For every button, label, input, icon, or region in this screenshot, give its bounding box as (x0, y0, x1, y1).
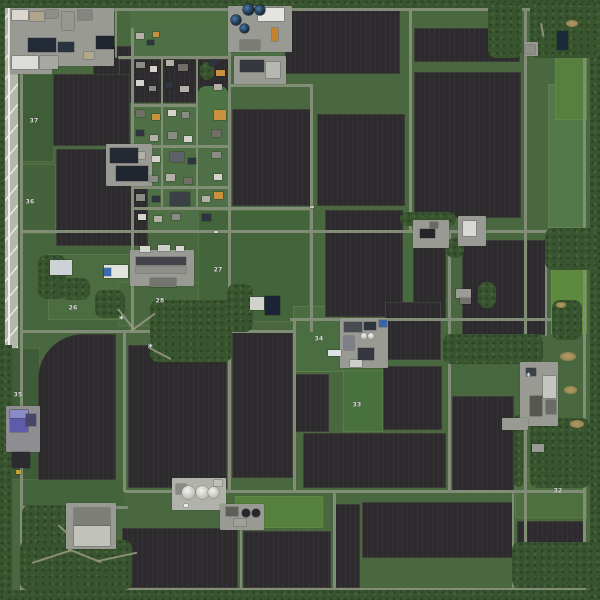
forest-patch (478, 282, 496, 308)
building (543, 376, 556, 398)
field-plot-dark[interactable] (122, 528, 238, 588)
building (176, 246, 184, 251)
road (131, 186, 230, 189)
field-plot-dark[interactable] (317, 114, 405, 206)
building (152, 196, 160, 202)
forest-patch (443, 334, 543, 364)
building (158, 245, 170, 251)
screenshot-root: ***373626282734333532 (0, 0, 600, 600)
road (583, 8, 586, 590)
vehicle-icon (310, 206, 314, 208)
white-silo-icon (208, 487, 219, 498)
building (84, 52, 94, 59)
building (165, 82, 173, 88)
building (214, 174, 222, 180)
building (178, 64, 188, 71)
field-plot-dark[interactable] (285, 7, 400, 74)
building (150, 135, 158, 141)
building (12, 10, 28, 20)
map-canvas[interactable]: ***373626282734333532 (0, 0, 600, 600)
building (136, 80, 144, 86)
building (40, 56, 58, 69)
dark-tank-icon (242, 509, 250, 517)
blue-tank-icon (255, 5, 265, 15)
building (272, 28, 278, 41)
building (216, 70, 225, 76)
field-number-label: 32 (554, 488, 563, 495)
forest-patch (530, 418, 590, 488)
building (202, 196, 210, 202)
building (104, 268, 111, 276)
building (212, 130, 221, 137)
building (214, 84, 222, 90)
building (26, 414, 36, 426)
forest-patch (512, 542, 600, 588)
building (532, 444, 544, 452)
building (463, 221, 476, 236)
building (152, 156, 160, 162)
field-plot-dark[interactable] (362, 502, 513, 558)
white-silo-icon (182, 486, 195, 499)
building (182, 112, 189, 118)
field-plot-dark[interactable] (414, 72, 521, 218)
building (168, 132, 177, 139)
building (46, 10, 58, 18)
wind-turbine-icon: * (148, 345, 153, 351)
building (50, 260, 72, 275)
dark-tank-icon (252, 509, 260, 517)
road (240, 528, 242, 588)
forest-patch (590, 0, 600, 600)
building (344, 336, 354, 350)
road (118, 56, 230, 59)
field-plot-dark[interactable] (335, 504, 360, 588)
field-number-label: 33 (353, 402, 362, 409)
field-plot-dark[interactable] (295, 374, 329, 432)
road (290, 318, 585, 321)
building (456, 289, 471, 298)
building (150, 176, 158, 182)
field-plot-dark[interactable] (325, 210, 403, 317)
field-plot-dark[interactable] (243, 531, 331, 588)
field-number-label: 36 (26, 199, 35, 206)
wind-turbine-icon: * (119, 317, 124, 323)
forest-patch (488, 2, 522, 58)
field-plot-dark[interactable] (232, 109, 311, 206)
building (30, 12, 44, 21)
field-number-label: 28 (156, 298, 165, 305)
building (350, 360, 362, 367)
building (430, 222, 438, 228)
building (240, 60, 264, 72)
field-number-label: 26 (69, 305, 78, 312)
sand-patch (570, 420, 584, 428)
building (212, 152, 221, 158)
building (170, 152, 184, 162)
building (136, 194, 145, 201)
building (140, 246, 150, 252)
blue-tank-icon (240, 24, 249, 33)
white-silo-icon (368, 333, 374, 339)
building (62, 12, 74, 30)
road (310, 84, 313, 332)
building (166, 174, 175, 181)
field-plot-dark[interactable] (303, 433, 446, 488)
building (557, 31, 568, 50)
field-plot-dark[interactable] (232, 332, 293, 478)
vehicle-icon (184, 504, 188, 507)
building (16, 470, 21, 474)
vehicle-icon (214, 231, 218, 233)
building (188, 158, 196, 164)
field-plot-dark[interactable] (38, 334, 116, 480)
field-number-label: 35 (14, 392, 23, 399)
building (180, 86, 189, 92)
sand-patch (556, 302, 566, 308)
building (202, 214, 211, 221)
road (161, 57, 163, 207)
building (110, 148, 138, 163)
building (214, 480, 222, 486)
road (196, 57, 198, 207)
sand-patch (566, 20, 578, 27)
building (147, 40, 154, 45)
building (379, 320, 387, 327)
forest-patch (545, 228, 597, 270)
building (234, 519, 246, 526)
building (172, 214, 180, 220)
building (344, 322, 362, 332)
building (28, 38, 56, 52)
road (409, 8, 412, 232)
road (293, 320, 296, 492)
building (96, 36, 114, 49)
building (152, 114, 160, 120)
building (166, 60, 174, 66)
building (364, 322, 376, 330)
building (136, 33, 144, 39)
building (150, 66, 157, 72)
field-plot-dark[interactable] (385, 302, 441, 360)
field-number-label: 37 (30, 118, 39, 125)
building (226, 507, 238, 516)
sand-patch (564, 386, 577, 394)
building (265, 296, 280, 315)
building (78, 10, 92, 20)
building (266, 62, 280, 78)
building (74, 508, 110, 526)
building (546, 400, 556, 414)
wind-turbine-icon: * (526, 374, 531, 380)
building (58, 42, 74, 52)
building (460, 298, 471, 304)
building (136, 267, 186, 273)
building (184, 136, 192, 142)
forest-patch (22, 505, 70, 547)
road (115, 8, 117, 58)
building (74, 526, 110, 546)
building (153, 32, 159, 37)
farmyard-pavement (502, 418, 528, 430)
building (150, 278, 176, 287)
white-silo-icon (361, 333, 367, 339)
field-plot-dark[interactable] (383, 366, 442, 430)
road (123, 332, 126, 492)
field-number-label: 27 (214, 267, 223, 274)
building (328, 350, 341, 356)
building (12, 452, 30, 468)
building (136, 110, 145, 117)
building (170, 192, 190, 206)
forest-patch (0, 345, 12, 595)
building (136, 130, 144, 136)
building (530, 396, 542, 416)
sand-patch (560, 352, 576, 361)
road (20, 8, 23, 591)
field-plot-dark[interactable] (452, 396, 514, 491)
road (228, 84, 312, 87)
building (138, 214, 146, 220)
building (214, 110, 226, 120)
building (420, 229, 435, 238)
building (214, 192, 223, 199)
road (524, 8, 527, 588)
blue-tank-icon (231, 15, 241, 25)
building (240, 40, 260, 50)
road (228, 8, 231, 492)
forest-patch (0, 590, 600, 600)
building (12, 56, 38, 69)
building (210, 60, 218, 66)
building (116, 166, 148, 181)
building (149, 86, 156, 91)
field-plot-dark[interactable] (128, 345, 227, 488)
building (154, 216, 162, 222)
building (136, 257, 186, 265)
building (136, 62, 145, 68)
road (333, 493, 336, 588)
field-plot-dark[interactable] (53, 74, 130, 146)
field-number-label: 34 (315, 336, 324, 343)
road (131, 207, 311, 210)
blue-tank-icon (243, 4, 254, 15)
building (184, 178, 192, 184)
building (168, 110, 176, 116)
building (250, 297, 264, 310)
building (525, 45, 535, 54)
building (358, 348, 374, 360)
road (20, 230, 585, 233)
field-plot-green[interactable] (343, 370, 383, 432)
forest-patch (60, 278, 90, 300)
